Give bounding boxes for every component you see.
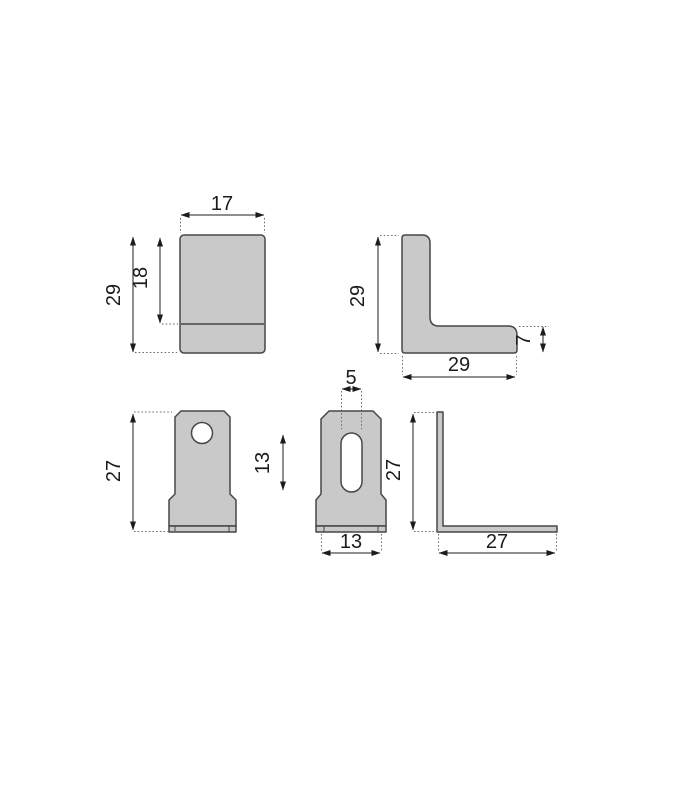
dim-label-top-side-height: 29 — [347, 285, 369, 307]
dim-label-bottom-front-width: 13 — [340, 531, 362, 553]
dim-label-top-front-width: 17 — [211, 193, 233, 215]
drawing-sheet: 17 18 29 29 29 7 27 — [0, 0, 700, 800]
view-front-hole: 27 — [103, 411, 236, 532]
dim-label-top-side-thickness: 7 — [513, 334, 535, 345]
view-front-slot: 5 13 13 — [252, 367, 386, 553]
dim-label-bottom-side-height: 27 — [383, 459, 405, 481]
front-plate-shape — [180, 235, 265, 353]
view-side-bottom: 27 27 — [383, 412, 557, 553]
thin-l-profile-shape — [437, 412, 557, 532]
dim-label-top-side-width: 29 — [448, 354, 470, 376]
view-side-top: 29 29 7 — [347, 235, 549, 377]
technical-drawing: 17 18 29 29 29 7 27 — [0, 0, 700, 800]
l-profile-shape — [402, 235, 517, 353]
dim-label-slot-width: 5 — [345, 367, 356, 389]
slot-hole — [341, 433, 362, 492]
dim-label-slot-length: 13 — [252, 452, 274, 474]
dim-label-top-front-height: 29 — [103, 284, 125, 306]
dim-label-bottom-front-height: 27 — [103, 460, 125, 482]
view-front-top: 17 18 29 — [103, 193, 265, 353]
round-hole — [192, 423, 213, 444]
dim-label-bottom-side-width: 27 — [486, 531, 508, 553]
